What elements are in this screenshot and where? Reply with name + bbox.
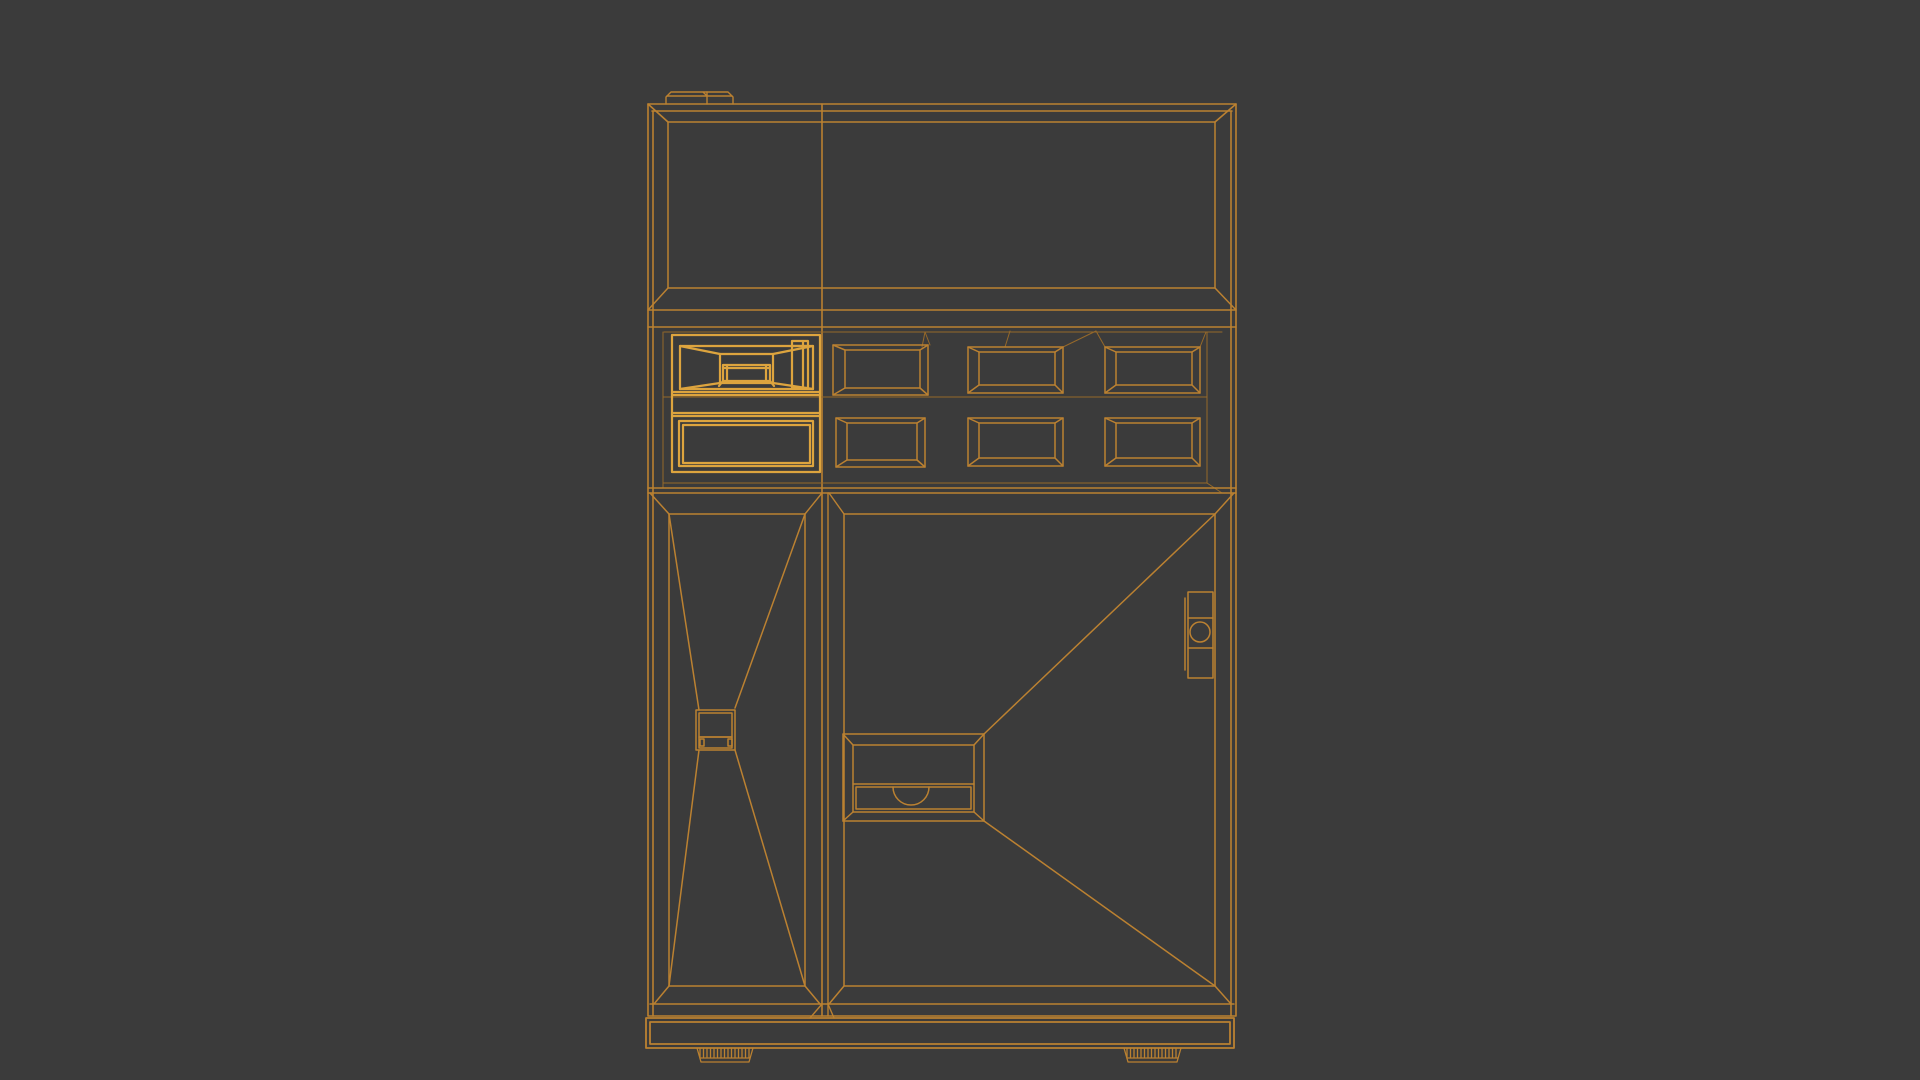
- product-window-r2c4: [1105, 418, 1200, 466]
- right-door: [829, 493, 1234, 1004]
- product-window-r2c3: [968, 418, 1063, 466]
- right-foot: [1124, 1048, 1181, 1062]
- product-window-r1c4: [1105, 347, 1200, 393]
- door-handle-lock: [1185, 592, 1213, 678]
- cabinet-frame: [648, 104, 1236, 1016]
- viewport-canvas: [0, 0, 1920, 1080]
- base-plinth: [646, 1018, 1234, 1048]
- coin-return-box: [696, 710, 735, 750]
- left-foot: [697, 1048, 753, 1062]
- dispense-tray: [843, 734, 984, 821]
- door-gap: [805, 493, 844, 1018]
- product-window-r1c2: [833, 345, 928, 395]
- product-window-r2c2: [836, 418, 925, 467]
- page: { "scene": { "object_name": "vending-mac…: [0, 0, 1920, 1080]
- featured-compartment: [672, 335, 820, 472]
- shelf-row-frame: [648, 488, 1236, 493]
- wireframe-viewport: [0, 0, 1920, 1080]
- roof-cap: [666, 92, 733, 104]
- product-window-r1c3: [968, 347, 1063, 393]
- display-window: [648, 122, 1236, 327]
